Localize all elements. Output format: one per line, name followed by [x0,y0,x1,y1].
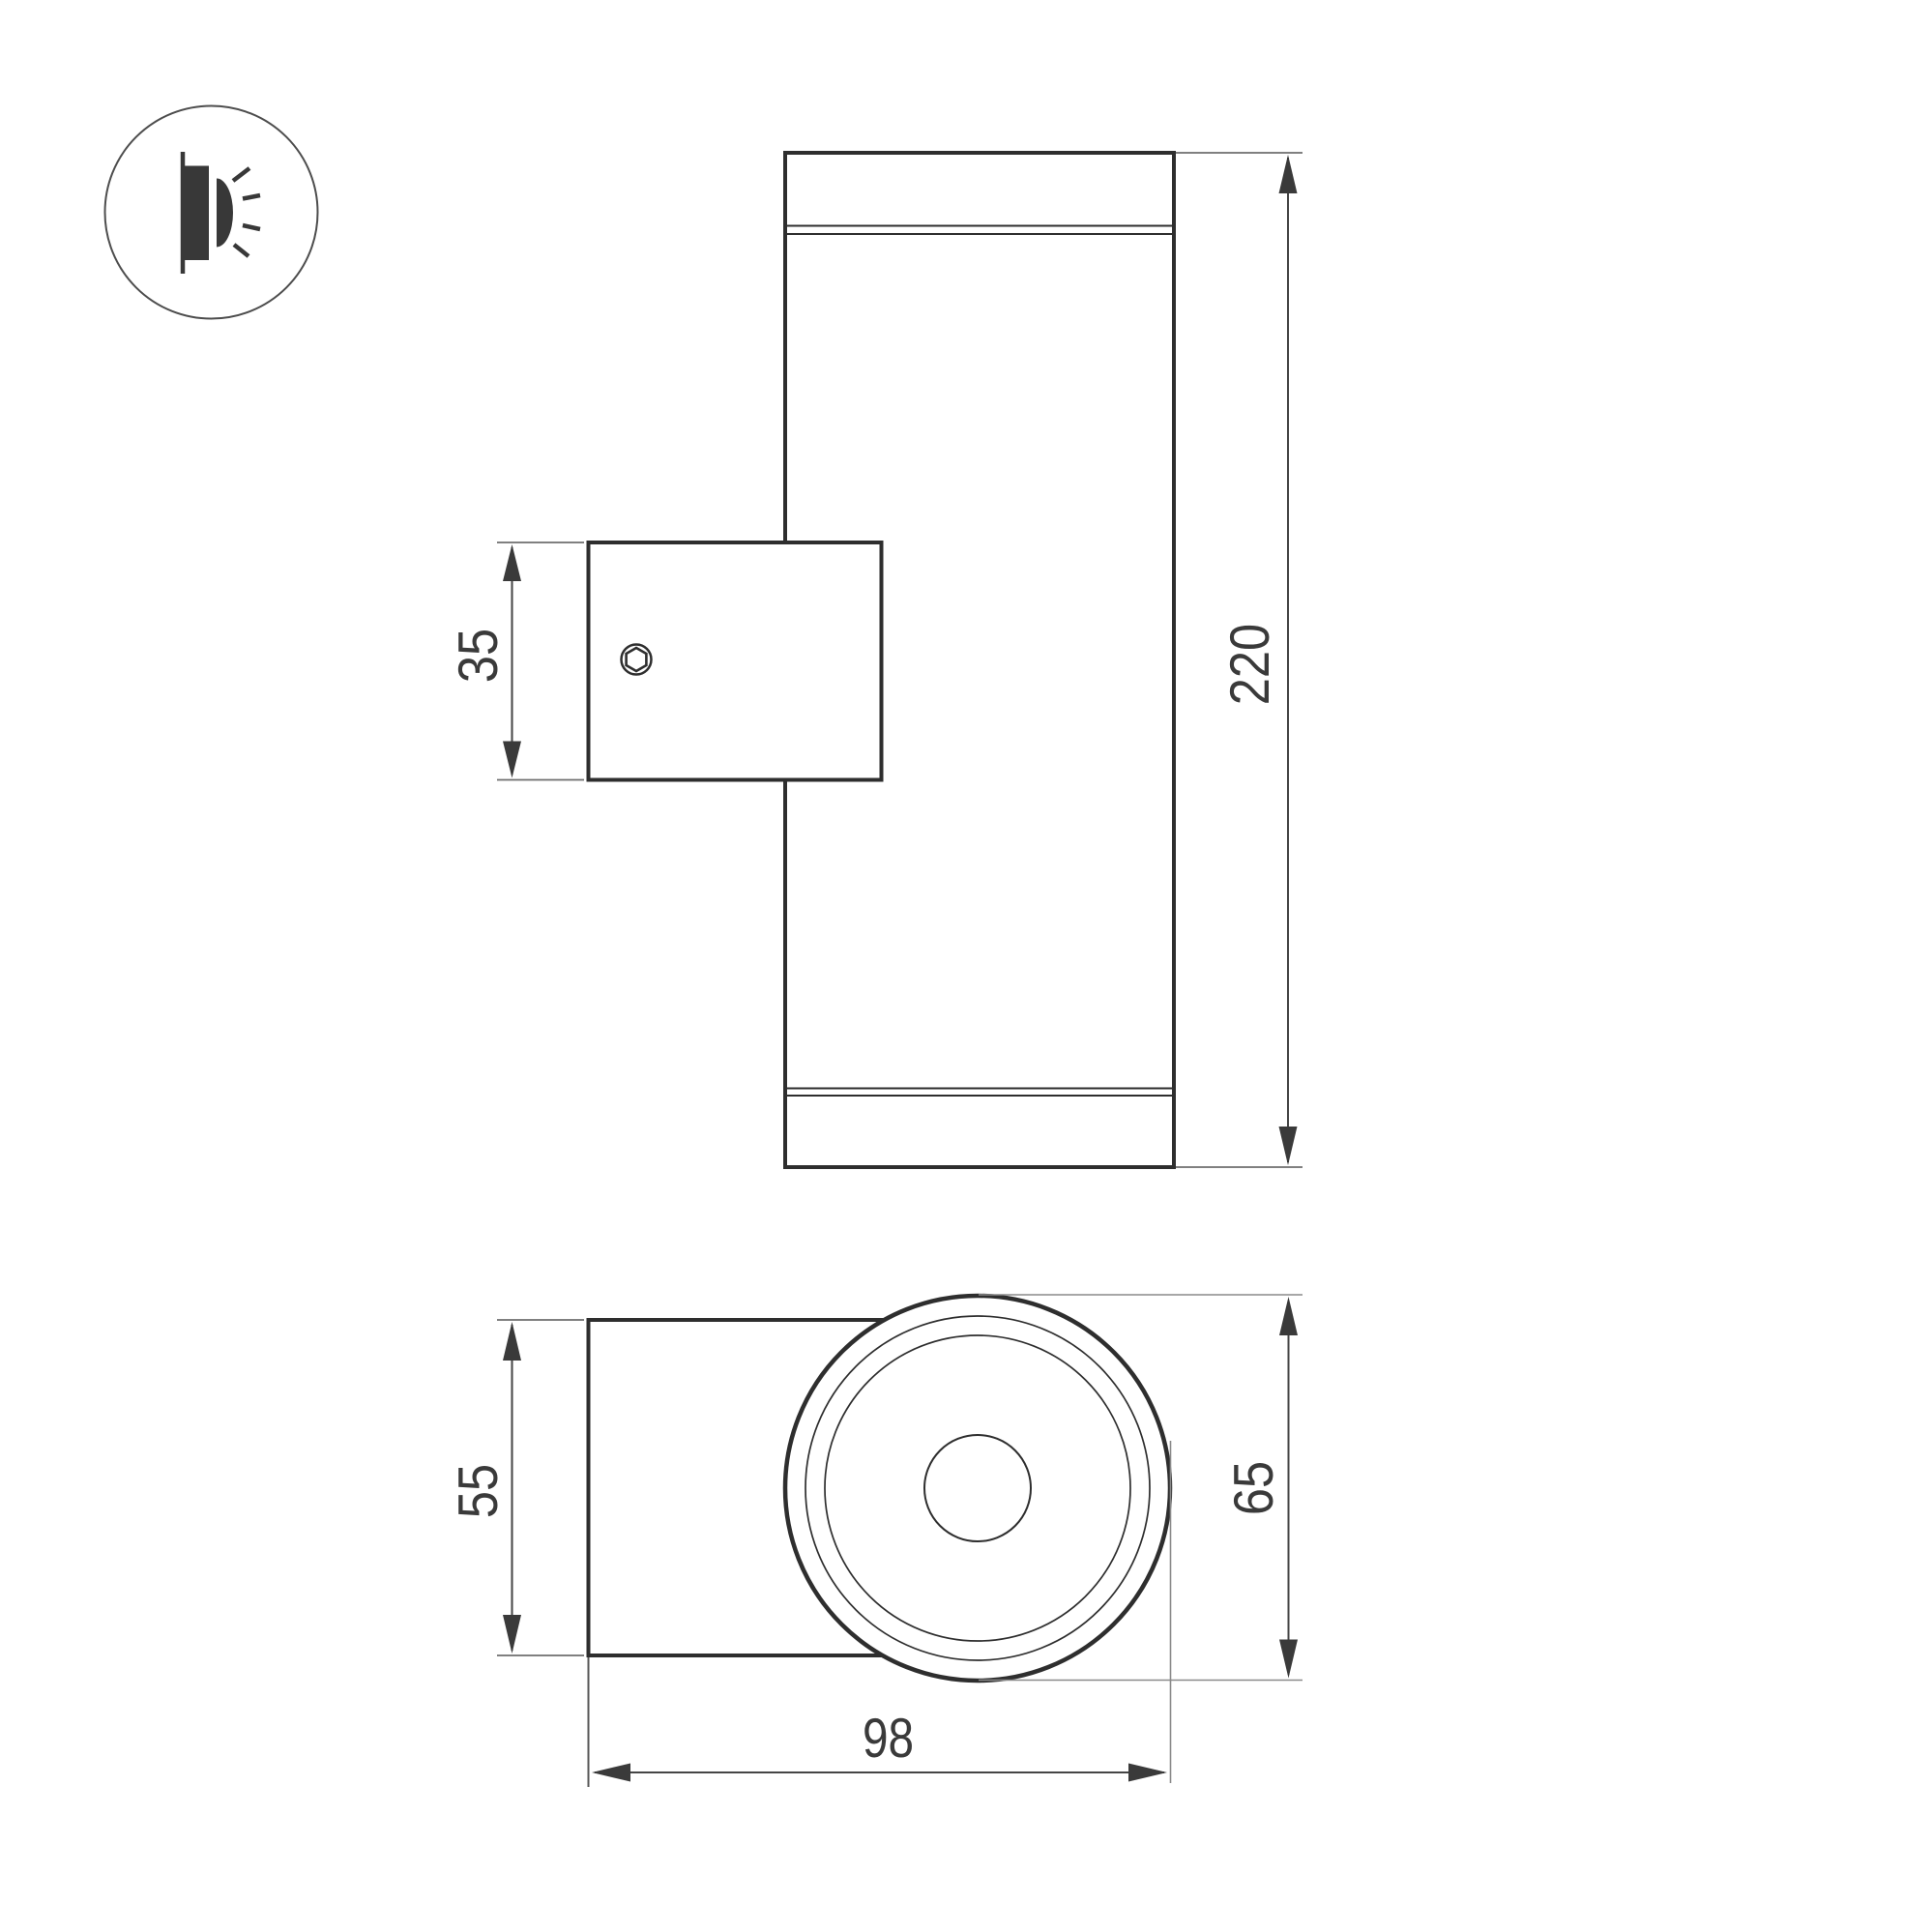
svg-text:35: 35 [448,629,510,683]
svg-text:55: 55 [448,1464,510,1518]
svg-text:65: 65 [1223,1461,1285,1515]
svg-text:220: 220 [1219,624,1281,705]
svg-text:98: 98 [863,1708,914,1770]
